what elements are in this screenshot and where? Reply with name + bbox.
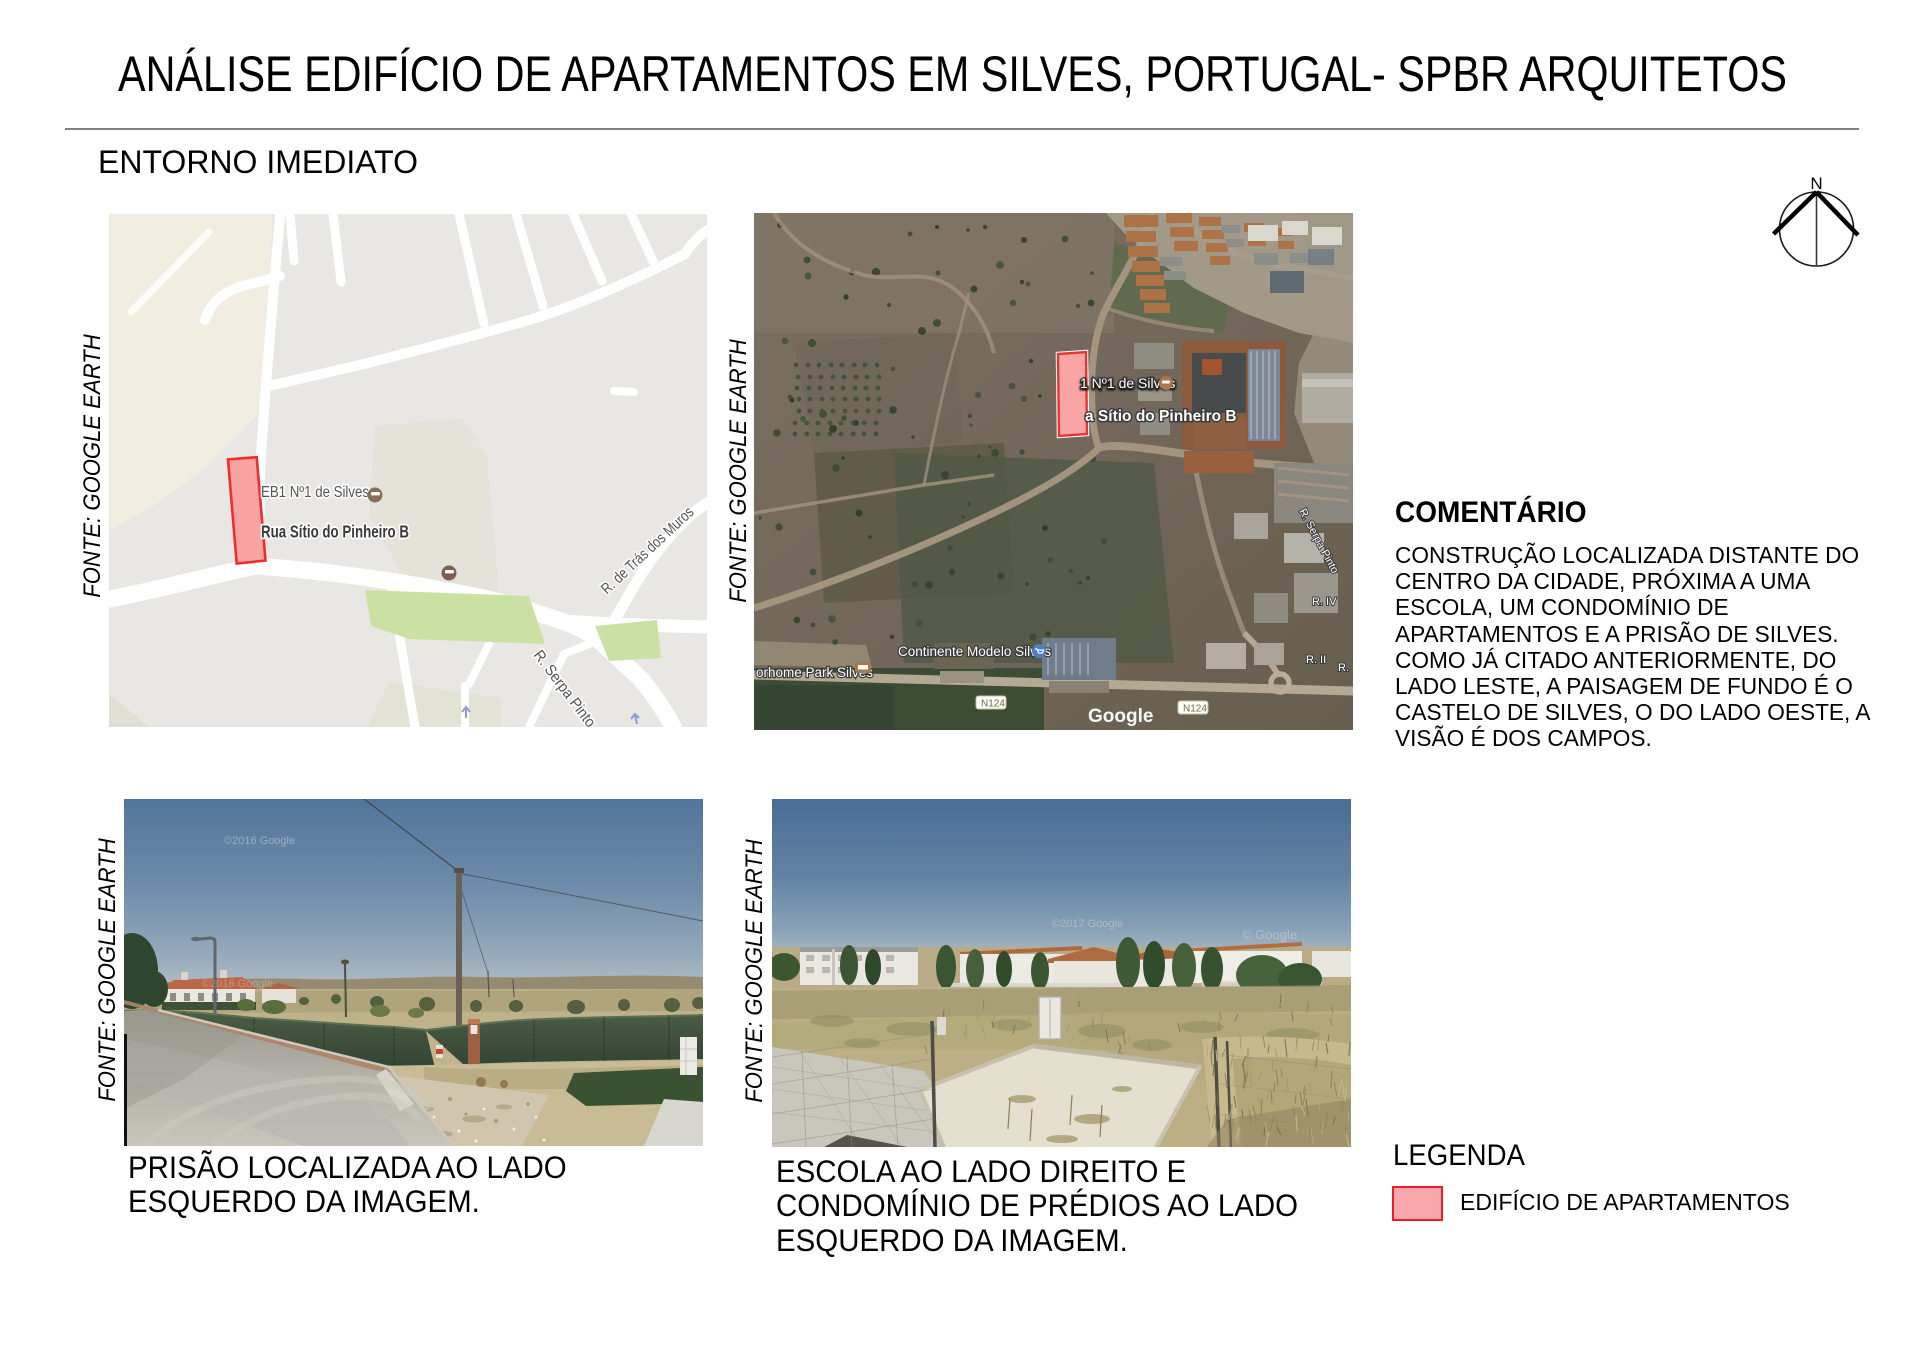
svg-text:R.: R. (1338, 662, 1349, 674)
svg-text:Continente Modelo Silves: Continente Modelo Silves (898, 644, 1051, 659)
svg-text:Google: Google (1088, 706, 1153, 727)
svg-text:N124: N124 (1183, 704, 1207, 715)
svg-text:©2017 Google: ©2017 Google (1052, 918, 1123, 930)
svg-text:©2016 Google: ©2016 Google (202, 978, 273, 990)
svg-text:Rua Sítio do Pinheiro B: Rua Sítio do Pinheiro B (261, 522, 409, 542)
svg-text:EB1 Nº1 de Silves: EB1 Nº1 de Silves (261, 484, 369, 501)
svg-text:R. IV: R. IV (1312, 596, 1337, 608)
svg-text:N124: N124 (981, 699, 1005, 710)
svg-text:©2016 Google: ©2016 Google (224, 835, 295, 847)
svg-text:a Sítio do Pinheiro B: a Sítio do Pinheiro B (1085, 408, 1237, 425)
svg-text:R. II: R. II (1306, 654, 1326, 666)
svg-text:© Google: © Google (1242, 927, 1297, 942)
svg-text:N: N (1810, 174, 1822, 193)
